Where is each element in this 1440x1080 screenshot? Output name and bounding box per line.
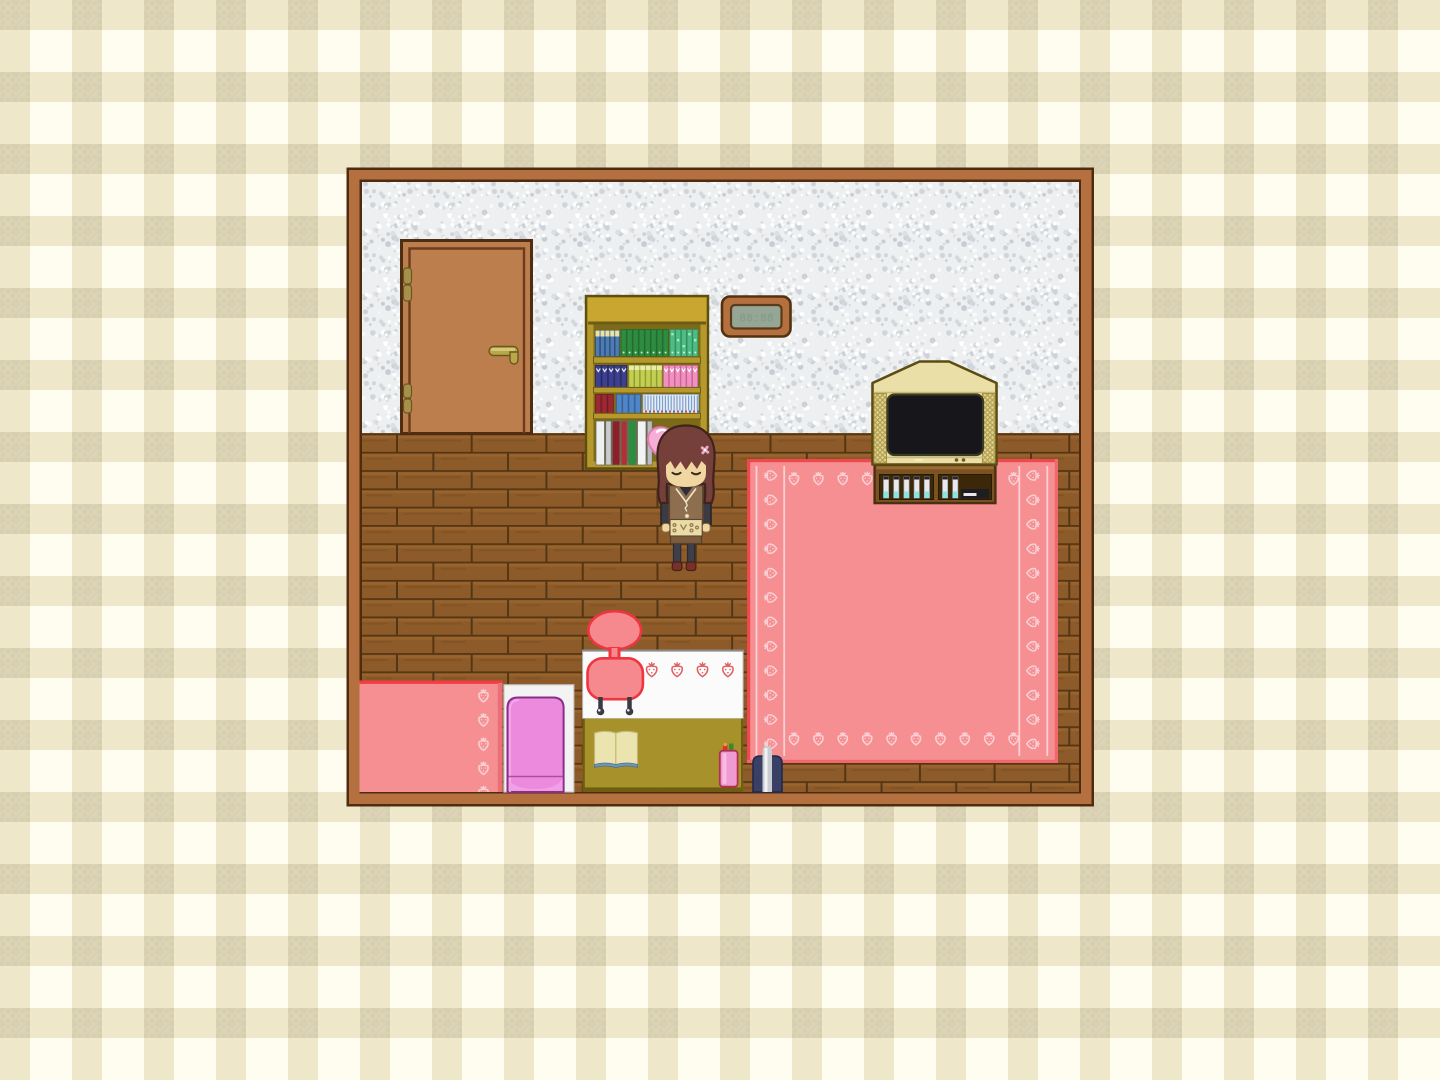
svg-text:88:88: 88:88 [739, 313, 774, 326]
